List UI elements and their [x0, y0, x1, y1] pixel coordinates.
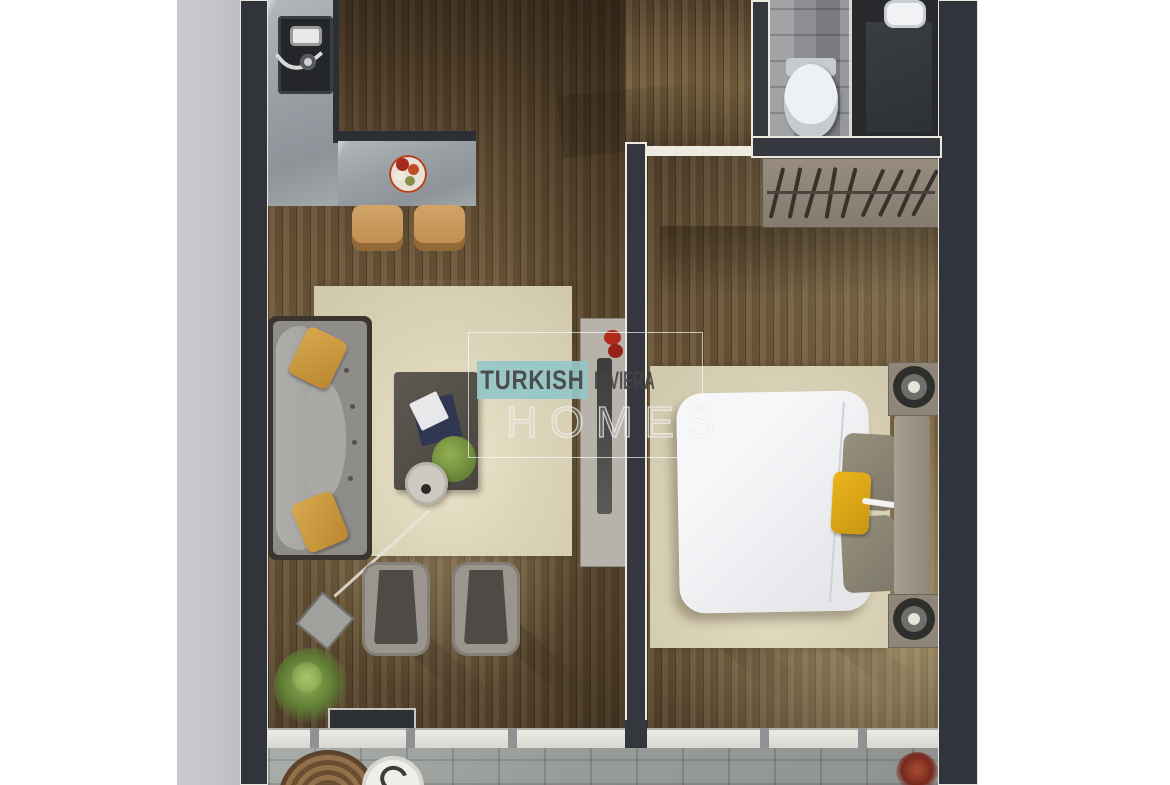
kitchen-counter-edge [333, 0, 339, 143]
bar-stool [414, 205, 465, 251]
headboard [894, 414, 930, 596]
side-table-cup [421, 484, 431, 494]
window-wall [268, 728, 938, 748]
sofa-cushion-curve [300, 380, 346, 500]
fruit [405, 176, 415, 186]
sofa-tuft [352, 440, 357, 445]
right-wall [938, 0, 978, 785]
window-frame-post [406, 728, 415, 748]
shower-floor [866, 22, 932, 132]
watermark-word-homes: HOMES [506, 398, 706, 448]
floor-plant-leaves [292, 662, 322, 692]
building-exterior-edge [177, 0, 243, 785]
table-lamp-bulb [908, 613, 920, 625]
watermark-word-turkish: TURKISH [480, 365, 584, 396]
sofa-tuft [344, 368, 349, 373]
bathroom-wall-side [751, 0, 770, 158]
table-lamp-bulb [908, 381, 920, 393]
armchair-seat [374, 570, 418, 644]
left-wall [240, 0, 268, 785]
bathroom-sink [884, 0, 926, 28]
sink-drain [300, 54, 316, 70]
floor-plan: TURKISH RIVIERA HOMES [0, 0, 1170, 785]
window-frame-post [310, 728, 319, 748]
armchair-seat [464, 570, 508, 644]
window-frame-post [858, 728, 867, 748]
breakfast-bar-edge [338, 131, 476, 141]
wardrobe-shadow [660, 226, 938, 296]
bathroom-wall-bottom [751, 136, 942, 158]
wardrobe [762, 158, 940, 228]
sofa-tuft [348, 476, 353, 481]
watermark-brand-badge: TURKISH [477, 361, 588, 399]
fruit [395, 171, 405, 181]
right-margin [978, 0, 1170, 785]
partition-wall-foot [625, 720, 647, 748]
bedroom-door-threshold [647, 146, 751, 156]
watermark-word-riviera: RIVIERA [594, 367, 714, 397]
bar-stool [352, 205, 403, 251]
toilet [784, 64, 838, 138]
shower-glass [849, 0, 852, 138]
sofa-tuft [350, 404, 355, 409]
window-frame-post [760, 728, 769, 748]
balcony-plant [896, 752, 938, 785]
fruit [408, 164, 419, 175]
window-frame-post [508, 728, 517, 748]
